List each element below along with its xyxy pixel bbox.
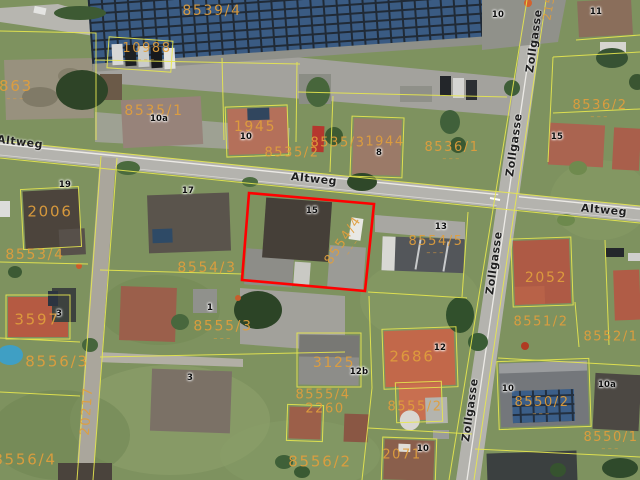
street-name: Altweg [0, 134, 44, 151]
parcel-label: 8556/2 [288, 455, 352, 470]
house-number: 11 [590, 8, 602, 17]
house-number: 3 [56, 310, 62, 319]
parcel-label: 8555/4 [295, 389, 350, 402]
parcel-label: 8551/2 [513, 316, 568, 329]
house-number: 13 [435, 223, 447, 232]
parcel-label: 8553/4 [5, 248, 64, 262]
map-canvas[interactable]: 8539/4109888638535/119458535/28535/31944… [0, 0, 640, 480]
house-number: 10a [150, 115, 168, 124]
house-number: 10 [240, 133, 252, 142]
house-number: 10a [598, 381, 616, 390]
house-number: 15 [306, 207, 318, 216]
parcel-label: 2006 [27, 205, 72, 220]
parcel-label: 8535/3 [310, 137, 365, 150]
street-name: Altweg [290, 171, 337, 187]
house-number: 10 [502, 385, 514, 394]
house-number: 19 [59, 181, 71, 190]
house-number: 12 [434, 344, 446, 353]
house-number: 12b [350, 368, 368, 377]
street-name: Altweg [580, 203, 627, 218]
house-number: 10 [492, 11, 504, 20]
parcel-label: 8554/5 [408, 235, 463, 257]
parcel-label: 8550/2 [514, 396, 569, 418]
street-name: Zollgasse [524, 9, 544, 74]
label-layer: 8539/4109888638535/119458535/28535/31944… [0, 0, 640, 480]
parcel-label: 8555/2 [387, 401, 442, 414]
parcel-label: 2686 [389, 350, 434, 365]
street-name: Zollgasse [460, 378, 480, 443]
house-number: 8 [376, 149, 382, 158]
parcel-label: 8554/3 [177, 261, 236, 275]
house-number: 10 [417, 445, 429, 454]
street-name: Zollgasse [484, 231, 504, 296]
house-number: 3 [187, 374, 193, 383]
house-number: 1 [207, 304, 213, 313]
parcel-label: 3597 [14, 313, 59, 328]
parcel-label: 1944 [365, 136, 404, 149]
house-number: 15 [551, 133, 563, 142]
parcel-label: 2071 [382, 449, 421, 462]
parcel-label: 2260 [305, 403, 344, 416]
parcel-label: 8556/4 [0, 453, 57, 468]
parcel-label: 2052 [525, 271, 567, 285]
parcel-label: 10988 [122, 42, 171, 64]
parcel-label: 8536/2 [572, 99, 627, 121]
parcel-label: 8552/1 [583, 331, 638, 344]
parcel-label: 20217 [79, 386, 95, 436]
parcel-label: 8550/1 [583, 431, 638, 453]
street-name: Zollgasse [504, 113, 524, 178]
parcel-label: 8536/1 [424, 141, 479, 163]
parcel-label: 8556/3 [25, 355, 89, 370]
house-number: 17 [182, 187, 194, 196]
parcel-label: 8555/3 [193, 320, 252, 343]
parcel-label: 8539/4 [182, 4, 241, 18]
parcel-label: 8554/4 [322, 214, 371, 272]
parcel-label: 863 [0, 79, 33, 103]
